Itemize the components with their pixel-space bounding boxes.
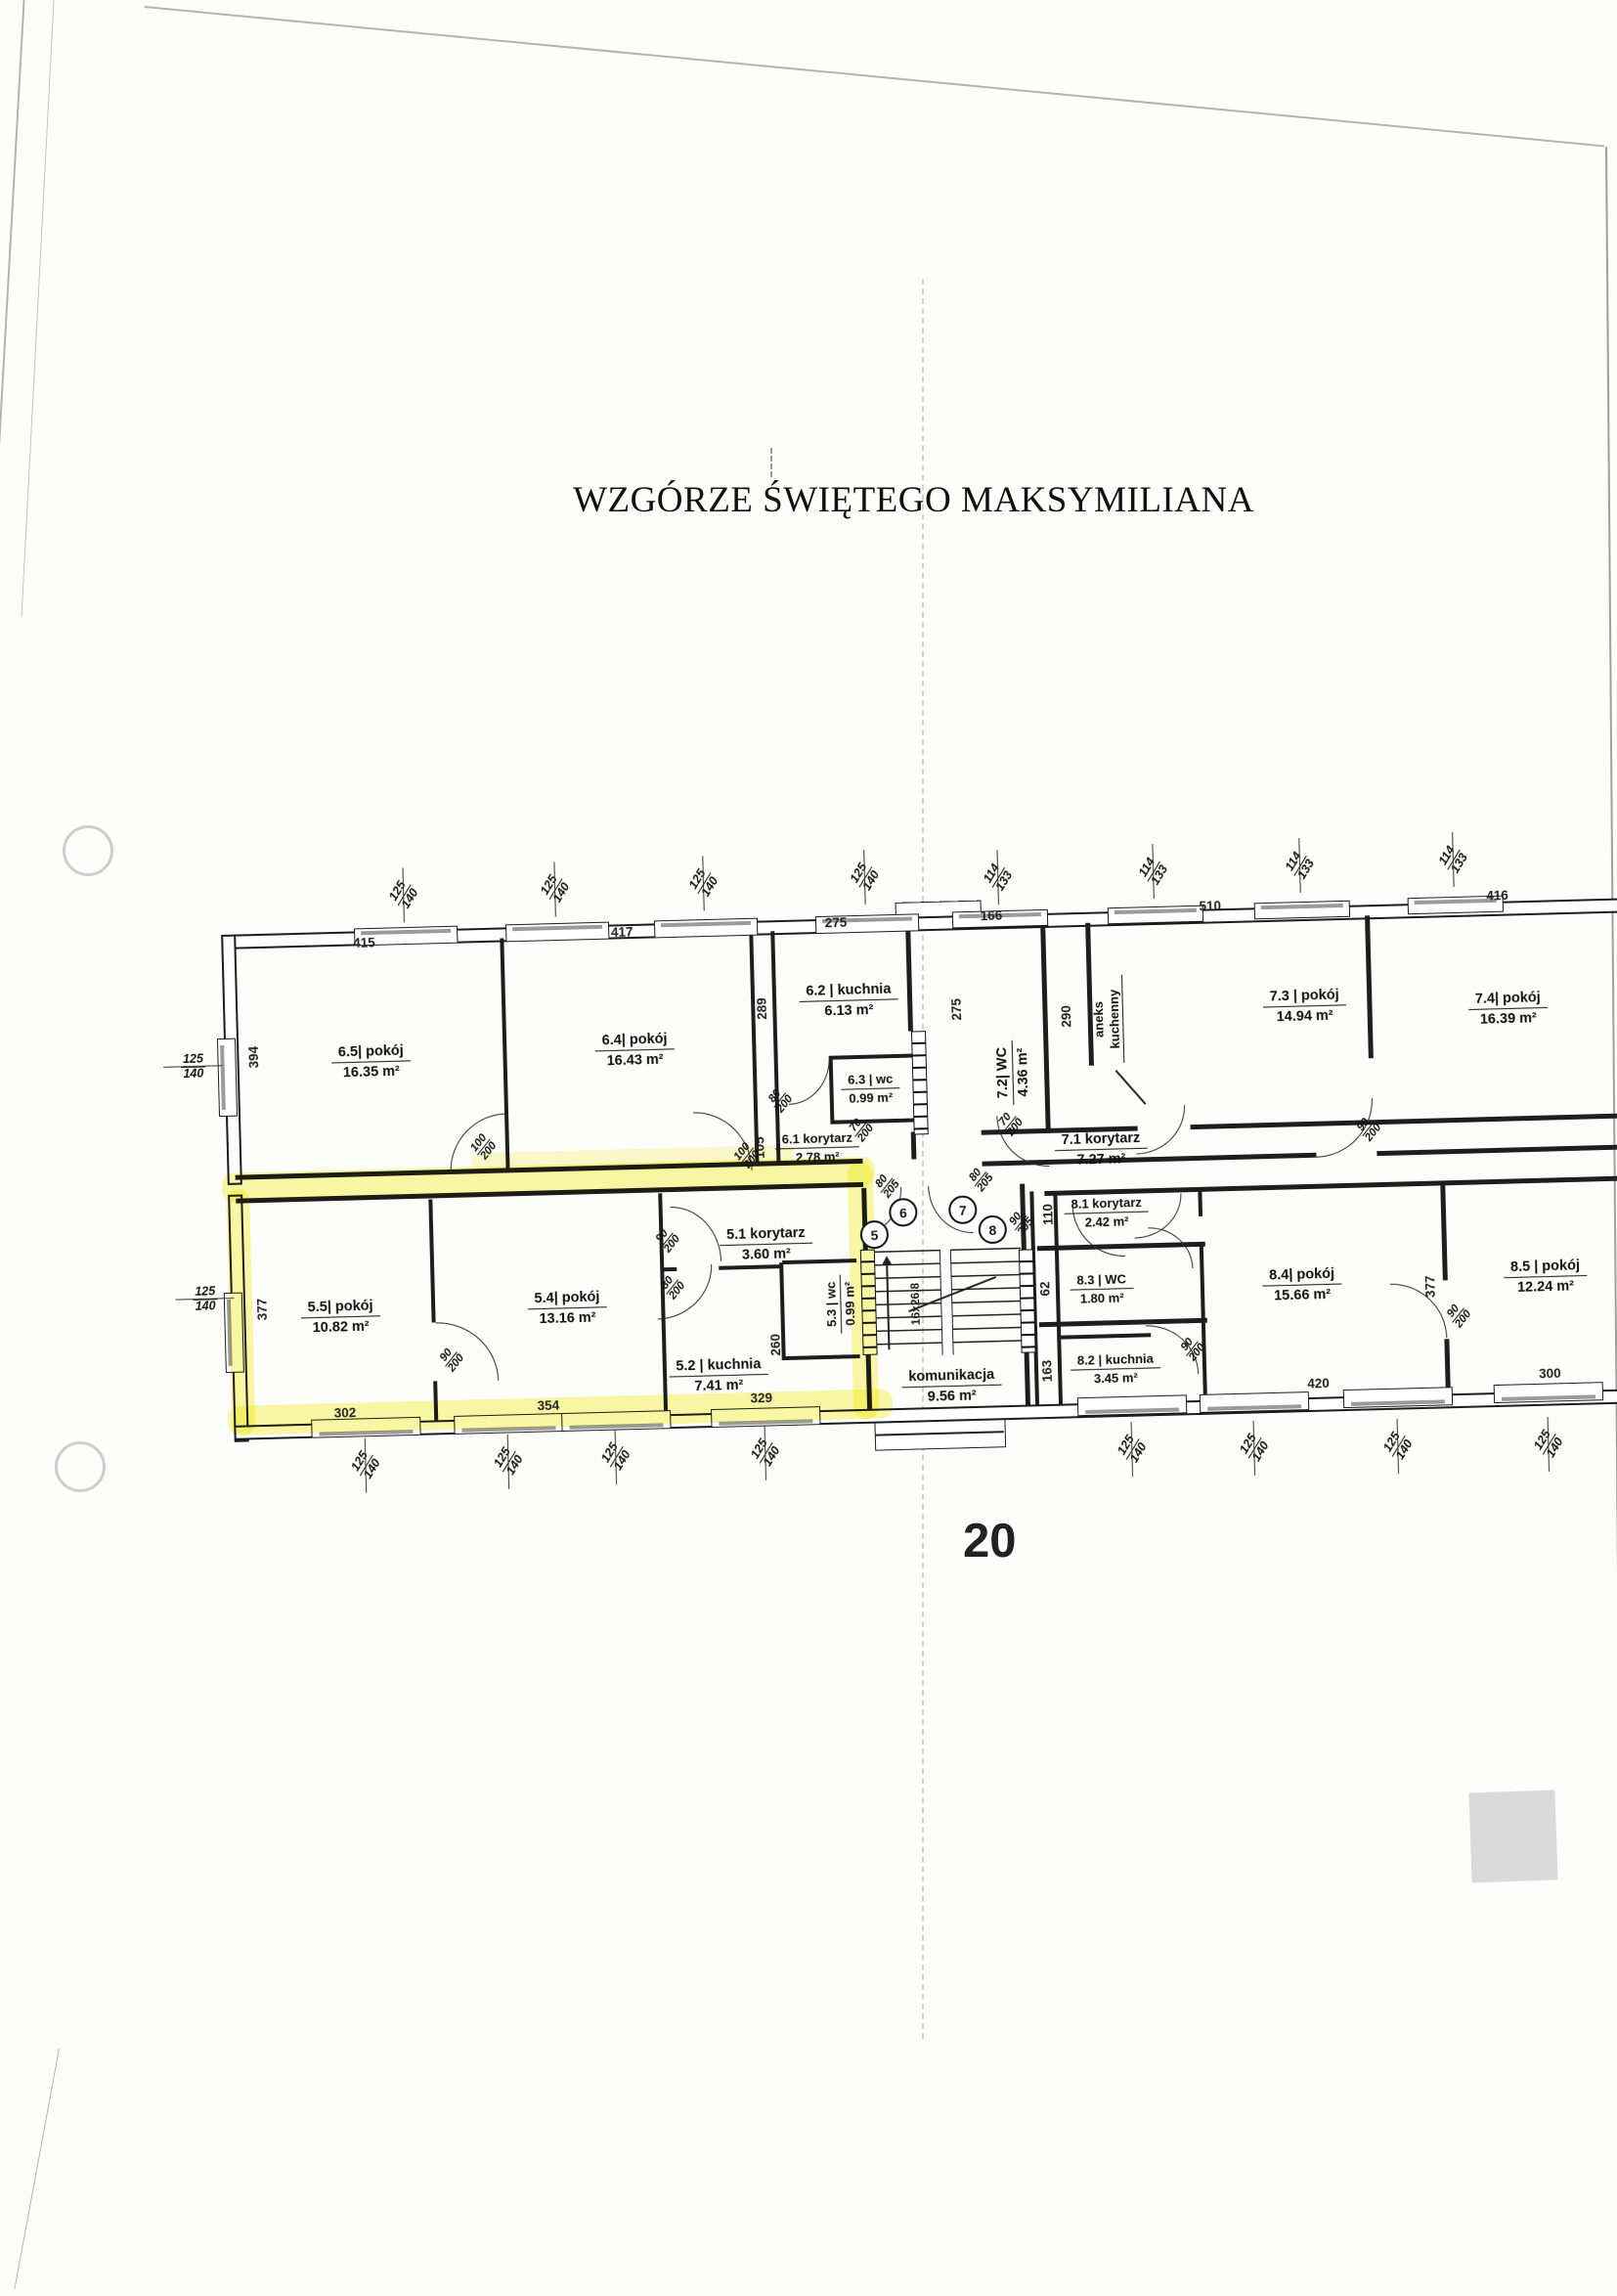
dim-275-top: 275 xyxy=(825,915,848,931)
scan-mark xyxy=(770,448,772,477)
window-dim-label: 125140 xyxy=(538,871,574,906)
scanned-page: { "title": "WZGÓRZE ŚWIĘTEGO MAKSYMILIAN… xyxy=(0,0,1617,2286)
window-dim-label: 125140 xyxy=(686,865,722,901)
wall xyxy=(1365,915,1374,1058)
room-label-7-3: 7.3 | pokój14.94 m² xyxy=(1262,986,1346,1026)
room-label-6-1: 6.1 korytarz2.78 m² xyxy=(774,1129,859,1167)
window xyxy=(1200,1391,1309,1413)
window-dim-label: 114133 xyxy=(981,861,1016,895)
door-dim-label: 90200 xyxy=(1443,1301,1474,1331)
wall xyxy=(1191,1114,1617,1130)
window-dim-label: 125140 xyxy=(181,1052,206,1081)
page-edge-top xyxy=(145,6,1604,147)
hole-punch-bottom xyxy=(55,1441,106,1492)
floor-plan: 16x26,8 6.5| pokój16.35 m² 6.4| pokój16.… xyxy=(221,893,1617,1516)
dim-110: 110 xyxy=(1040,1204,1056,1225)
room-label-5-4: 5.4| pokój13.16 m² xyxy=(527,1288,607,1328)
room-label-6-2: 6.2 | kuchnia6.13 m² xyxy=(799,980,898,1021)
wall xyxy=(749,932,759,1164)
door-strip xyxy=(1019,1249,1036,1352)
wall xyxy=(428,1199,435,1322)
window xyxy=(1254,901,1350,920)
room-label-5-1: 5.1 korytarz3.60 m² xyxy=(720,1224,813,1265)
wall xyxy=(1044,1176,1617,1197)
dim-354: 354 xyxy=(537,1398,559,1414)
room-label-8-1: 8.1 korytarz2.42 m² xyxy=(1064,1195,1149,1232)
dim-417: 417 xyxy=(611,924,634,940)
window xyxy=(1343,1387,1453,1408)
wall xyxy=(905,928,913,1032)
wall xyxy=(1039,1318,1207,1328)
dim-300: 300 xyxy=(1539,1366,1561,1382)
room-label-5-5: 5.5| pokój10.82 m² xyxy=(300,1297,380,1337)
window xyxy=(217,1038,238,1117)
dim-377-left: 377 xyxy=(254,1299,270,1321)
window-dim-label: 125140 xyxy=(491,1444,527,1479)
hole-punch-top xyxy=(63,825,113,876)
window xyxy=(1108,905,1203,925)
room-label-6-3: 6.3 | wc0.99 m² xyxy=(841,1071,900,1107)
room-label-6-4: 6.4| pokój16.43 m² xyxy=(594,1030,675,1070)
apartment-number-5: 5 xyxy=(860,1220,890,1250)
apartment-number-7: 7 xyxy=(948,1195,978,1224)
wall xyxy=(1025,1351,1030,1405)
dim-394: 394 xyxy=(246,1046,262,1069)
window-dim-label: 125140 xyxy=(1237,1431,1273,1466)
wall xyxy=(782,1354,860,1360)
room-label-8-4: 8.4| pokój15.66 m² xyxy=(1262,1264,1342,1304)
dim-329: 329 xyxy=(750,1391,772,1406)
room-label-7-2: 7.2| WC4.36 m² xyxy=(993,1039,1033,1105)
room-label-8-3: 8.3 | WC1.80 m² xyxy=(1070,1271,1134,1307)
page-title: WZGÓRZE ŚWIĘTEGO MAKSYMILIANA xyxy=(540,479,1288,521)
highlight-left xyxy=(226,1188,256,1435)
window-dim-label: 114133 xyxy=(1136,854,1171,888)
dim-289: 289 xyxy=(755,997,770,1020)
dim-377-right: 377 xyxy=(1422,1275,1438,1298)
dim-163: 163 xyxy=(1039,1360,1055,1383)
dim-62: 62 xyxy=(1037,1281,1052,1296)
window xyxy=(1077,1394,1187,1416)
window-dim-label: 114133 xyxy=(1282,849,1317,883)
door-arc xyxy=(1390,1282,1447,1339)
door-strip xyxy=(911,1031,929,1134)
window-dim-label: 125140 xyxy=(598,1439,634,1475)
apartment-number-6: 6 xyxy=(889,1198,918,1227)
wall xyxy=(719,1264,781,1270)
door-arc xyxy=(1148,1226,1193,1269)
wall xyxy=(1377,1145,1617,1157)
room-label-8-5: 8.5 | pokój12.24 m² xyxy=(1504,1257,1588,1297)
window-dim-label: 125140 xyxy=(1531,1427,1567,1462)
window xyxy=(1494,1382,1603,1403)
window-dim-label: 114133 xyxy=(1435,842,1470,876)
window-dim-label: 125140 xyxy=(348,1447,384,1482)
window-dim-label: 125140 xyxy=(1380,1429,1417,1464)
wall xyxy=(1040,924,1050,1129)
room-label-6-5: 6.5| pokój16.35 m² xyxy=(331,1041,412,1082)
dim-415: 415 xyxy=(353,935,375,950)
room-label-komunikacja: komunikacja9.56 m² xyxy=(901,1366,1002,1407)
annex-counter-line xyxy=(1115,1070,1147,1105)
window xyxy=(505,922,609,943)
stair-arrow-head xyxy=(882,1256,892,1264)
dim-166: 166 xyxy=(980,908,1002,924)
window-dim-label: 125140 xyxy=(748,1435,784,1471)
dim-510: 510 xyxy=(1199,899,1221,914)
door-arc xyxy=(671,1206,721,1262)
window-dim-label: 125140 xyxy=(847,860,883,895)
dim-290: 290 xyxy=(1059,1005,1074,1028)
room-label-5-3: 5.3 | wc0.99 m² xyxy=(823,1274,859,1334)
room-label-8-2: 8.2 | kuchnia3.45 m² xyxy=(1071,1350,1161,1388)
scan-smudge xyxy=(1468,1789,1557,1882)
wall xyxy=(829,1054,913,1060)
page-edge-left-2 xyxy=(22,0,56,617)
wall xyxy=(911,1131,917,1159)
dim-260: 260 xyxy=(768,1334,784,1356)
dim-275-mid: 275 xyxy=(949,998,965,1021)
room-label-7-1: 7.1 korytarz7.27 m² xyxy=(1054,1129,1148,1170)
window-dim-label: 125140 xyxy=(193,1285,218,1313)
door-arc xyxy=(788,1058,831,1105)
wall xyxy=(1198,1187,1202,1216)
wall xyxy=(829,1058,835,1123)
room-label-7-4: 7.4| pokój16.39 m² xyxy=(1468,989,1549,1029)
stair-note: 16x26,8 xyxy=(908,1283,923,1326)
wall xyxy=(770,931,780,1163)
apartment-number-8: 8 xyxy=(978,1215,1007,1245)
dim-416: 416 xyxy=(1486,888,1508,904)
window xyxy=(654,918,758,939)
page-edge-left xyxy=(0,0,25,2296)
room-label-annex: aneks kuchenny xyxy=(1090,975,1125,1064)
wall xyxy=(1440,1180,1448,1280)
window-dim-label: 125140 xyxy=(386,877,422,912)
window-dim-label: 125140 xyxy=(1114,1432,1151,1467)
dim-420: 420 xyxy=(1307,1376,1330,1391)
dim-302: 302 xyxy=(334,1405,357,1421)
wall xyxy=(1061,1333,1151,1339)
wall xyxy=(830,1118,914,1124)
page-edge-bottom-left xyxy=(14,2049,60,2289)
page-number: 20 xyxy=(963,1514,1017,1568)
